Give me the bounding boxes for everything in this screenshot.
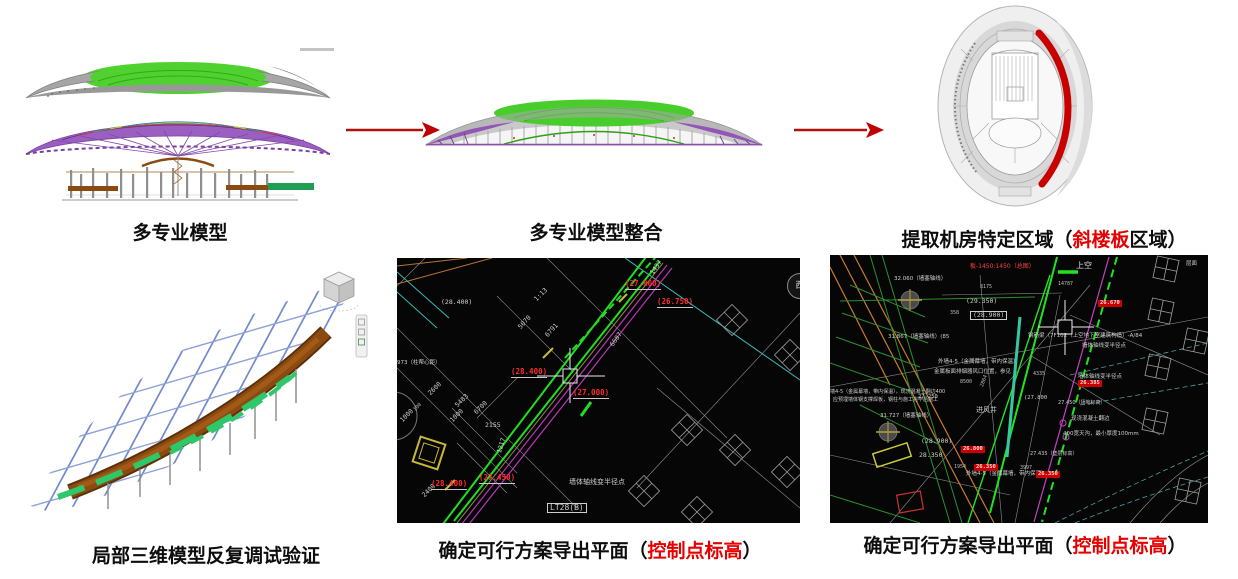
cad-label: 31.727（墙塞轴线） — [880, 414, 932, 420]
cad-plan-right: 上空 层面 板-1450:1450（总图） 32.060（墙塞轴线） 8175 … — [830, 255, 1208, 523]
caption-top-3: 提取机房特定区域（斜楼板区域） — [850, 225, 1238, 252]
cad-label: 14787 — [1058, 282, 1073, 287]
arrow-icon — [792, 118, 884, 142]
exploded-model-image — [22, 36, 334, 208]
cad-elevation-label: (28.400) — [431, 480, 467, 490]
cad-label: 32.060（墙塞轴线） — [894, 277, 946, 283]
cad-label: (28.900) — [921, 438, 952, 445]
caption-top-2: 多专业模型整合 — [420, 218, 772, 245]
arena-plan-image — [935, 3, 1095, 210]
cad-label: 层面 — [1186, 262, 1197, 268]
cad-label: 钢筋梁（7F102（上空地下室建筑构造）-A/84 — [1028, 334, 1142, 340]
slide-canvas: 多专业模型 多专业模型整合 提取机房特定区域（斜楼板区域） — [0, 0, 1238, 579]
cad-label: LT28(B) — [547, 503, 587, 513]
cad-elevation-label: (27.450) — [479, 474, 515, 484]
cad-label: 27.435（垫层标高） — [1030, 452, 1078, 457]
cad-label: 27.450（场地标高） — [1058, 401, 1106, 406]
cad-label: (28.400) — [441, 299, 472, 306]
caption-top-1: 多专业模型 — [20, 218, 340, 245]
cad-label: 8175 — [980, 285, 992, 290]
cad-elevation-badge: 26.385 — [1078, 380, 1102, 387]
cad-elevation-badge: 26.670 — [1098, 300, 1122, 307]
cad-label: 400宽天沟，最小厚度100mm — [1063, 432, 1139, 438]
cad-label: (27.800 — [1024, 396, 1047, 402]
cad-elevation-label: (26.750) — [657, 298, 693, 308]
cad-label: 墙体轴线变半径点 — [1082, 344, 1126, 350]
cad-label: 358 — [950, 311, 959, 316]
cad-elevation-badge: 26.800 — [961, 446, 985, 453]
cad-label: (28.900) — [970, 311, 1007, 320]
cad-label: 现浇混凝土翻边 — [1071, 417, 1110, 423]
cad-red-note: 板-1450:1450（总图） — [970, 264, 1035, 270]
cad-elevation-label: (27.800) — [625, 280, 661, 290]
cad-elevation-label: (28.400) — [511, 368, 547, 378]
caption-bottom-2: 确定可行方案导出平面（控制点标高） — [385, 536, 815, 563]
cad-label: 1954 — [954, 465, 966, 470]
cad-label: 2155 — [485, 422, 501, 429]
caption-bottom-3: 确定可行方案导出平面（控制点标高） — [820, 531, 1230, 558]
cad-elevation-label: (27.000) — [573, 389, 609, 399]
cad-label: 4335 — [1033, 372, 1045, 377]
cad-label: 973（柱帮心距） — [397, 361, 441, 367]
cad-label: 外墙4-5（金属幕墙，带内保温） — [966, 472, 1046, 478]
cad-label: 金属板面排烟器风口位置，参见 — [934, 370, 1011, 376]
cad-label: 28.350 — [919, 452, 942, 459]
exploded-model-graphic — [22, 36, 334, 208]
integrated-model-image — [424, 92, 764, 150]
caption-bottom-1: 局部三维模型反复调试验证 — [18, 541, 394, 568]
integrated-model-graphic — [424, 92, 764, 150]
cad-label: 27.250 — [918, 395, 938, 401]
cad-elevation-badge: 26.350 — [1036, 471, 1060, 478]
cad-label: 8500 — [960, 380, 972, 385]
cad-label: 3997 — [1020, 466, 1032, 471]
cad-label: (29.350) — [966, 298, 997, 305]
cad-elevation-badge: 26.350 — [974, 464, 998, 471]
cad-plan-middle: (28.400) 1:13 1437 5070 6791 6607 973（柱帮… — [397, 258, 800, 523]
cad-label: 上空 — [1076, 262, 1092, 270]
lattice-model-graphic — [18, 257, 394, 521]
cad-label: 外墙4-5（金属幕墙，带内保温） — [938, 360, 1018, 366]
cad-label: 进风井 — [976, 407, 997, 414]
cad-label: 墙体轴线变半径点 — [569, 479, 625, 486]
cad-label: 31.867（墙塞轴线）(85 — [888, 335, 949, 341]
arena-plan-graphic — [935, 3, 1095, 210]
lattice-model-image — [18, 257, 394, 521]
